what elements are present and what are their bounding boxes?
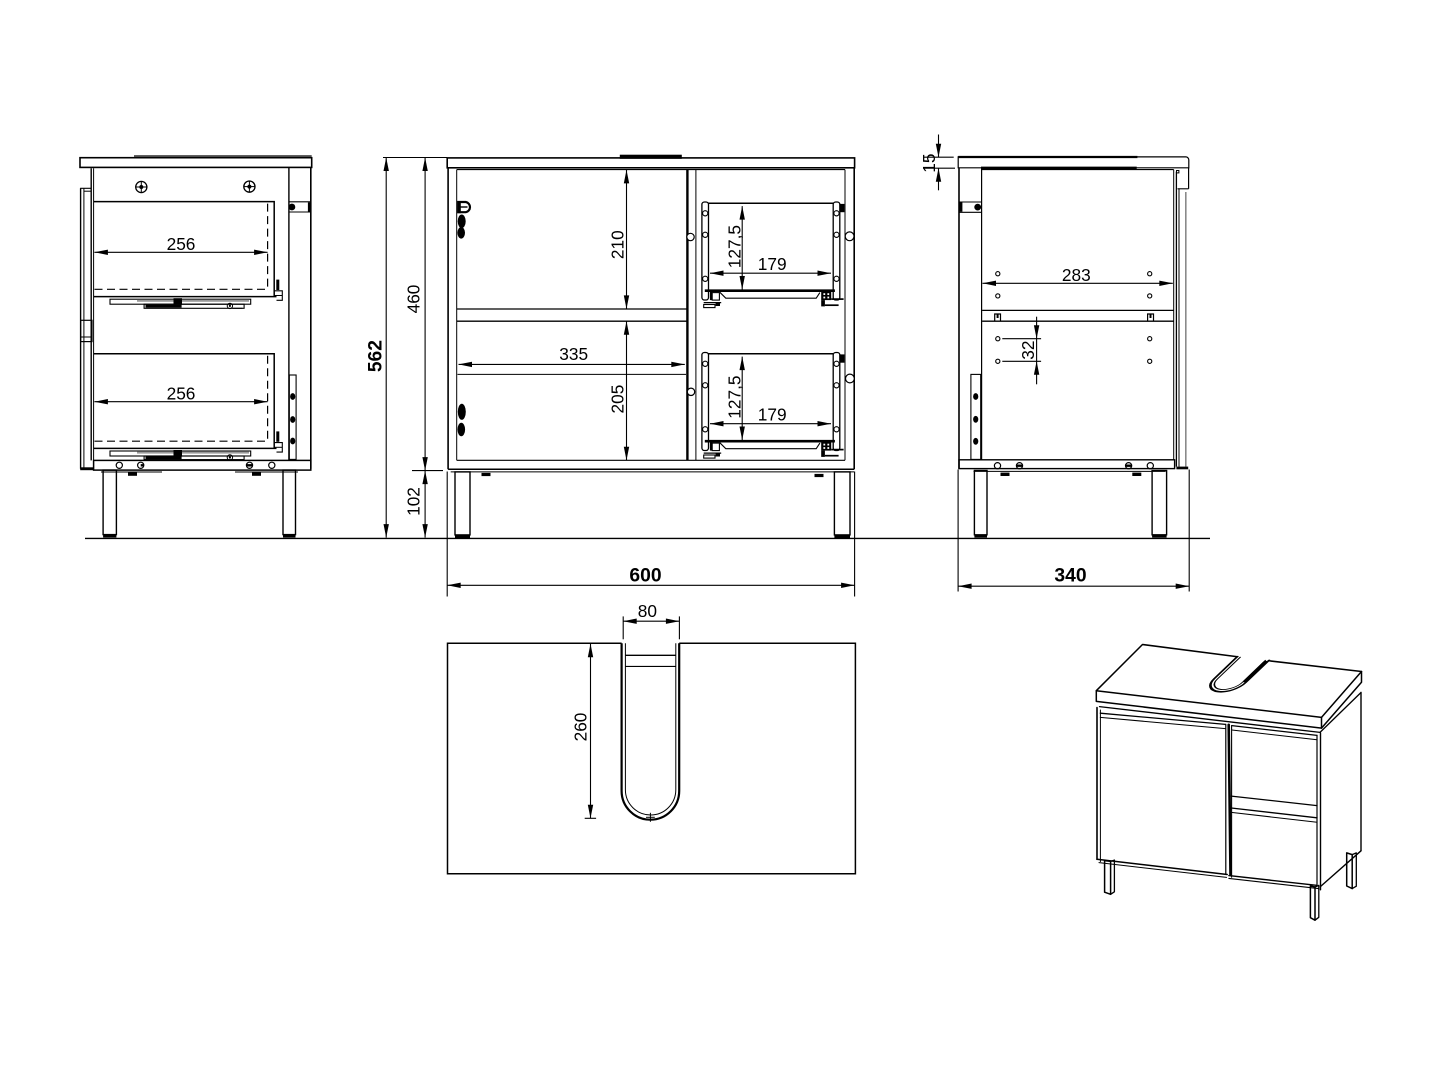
svg-text:32: 32	[1018, 340, 1038, 359]
svg-text:460: 460	[403, 285, 423, 314]
svg-text:600: 600	[629, 565, 661, 586]
svg-text:205: 205	[608, 385, 628, 414]
svg-text:127,5: 127,5	[724, 225, 744, 268]
svg-text:102: 102	[403, 487, 423, 516]
svg-text:127,5: 127,5	[724, 375, 744, 418]
svg-text:562: 562	[366, 340, 387, 372]
svg-text:179: 179	[758, 254, 787, 274]
svg-text:15: 15	[919, 153, 939, 172]
svg-text:335: 335	[559, 344, 588, 364]
svg-text:210: 210	[608, 230, 628, 259]
svg-text:256: 256	[167, 383, 196, 403]
svg-text:80: 80	[638, 601, 657, 621]
svg-text:340: 340	[1054, 566, 1086, 587]
svg-text:256: 256	[167, 234, 196, 254]
svg-text:260: 260	[570, 713, 590, 742]
svg-text:179: 179	[758, 404, 787, 424]
svg-text:283: 283	[1062, 265, 1091, 285]
